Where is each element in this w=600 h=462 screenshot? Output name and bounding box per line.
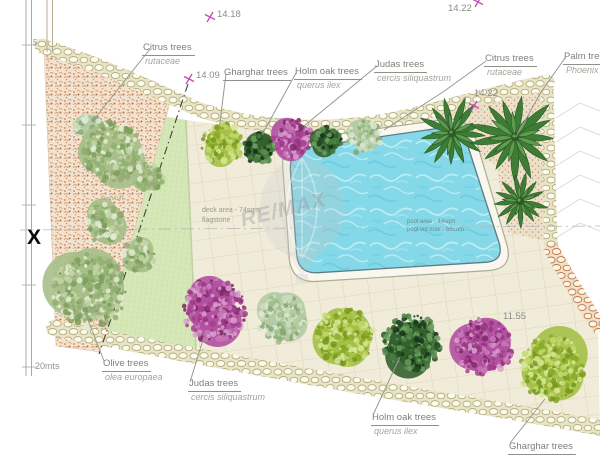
- plant-label-olive: Olive treesolea europaea: [102, 353, 163, 382]
- plant-species: olea europaea: [102, 372, 163, 382]
- plant-name: Holm oak trees: [294, 67, 362, 80]
- elevation-marker: 14.18: [217, 9, 241, 20]
- plant-label-gharghar-bottom: Gharghar trees: [508, 436, 576, 455]
- plant-name: Olive trees: [102, 359, 151, 372]
- plant-species: rutaceae: [142, 56, 195, 66]
- plant-label-citrus-top: Citrus treesrutaceae: [142, 37, 195, 66]
- plant-name: Gharghar trees: [223, 68, 291, 81]
- plant-species: rutaceae: [484, 67, 537, 77]
- plant-label-holm-oak-top: Holm oak treesquerus ilex: [294, 61, 362, 90]
- elevation-value: 11.55: [503, 311, 526, 322]
- ruler-label-5: 5: [33, 38, 37, 47]
- deck-note-line1: deck area - 74sqm: [202, 206, 260, 216]
- plant-label-palm: Palm treesPhoenix: [563, 46, 600, 75]
- plant-species: querus ilex: [371, 426, 439, 436]
- plant-species: cercis siliquastrum: [188, 392, 265, 402]
- pool-note-line2: pool vol max - 66cum: [407, 226, 464, 234]
- plant-label-judas-bottom: Judas treescercis siliquastrum: [188, 373, 265, 402]
- survey-cross-icon: [204, 11, 216, 23]
- landscape-plan: RE/MAX deck area - 74sqm flagstone pool …: [0, 0, 600, 462]
- lawn-note: lawn/turf: [101, 196, 124, 202]
- survey-cross-icon: [183, 73, 195, 85]
- plant-species: Phoenix: [563, 65, 600, 75]
- plant-name: Holm oak trees: [371, 413, 439, 426]
- plant-species: querus ilex: [294, 80, 362, 90]
- plant-name: Citrus trees: [142, 43, 195, 56]
- deck-note: deck area - 74sqm flagstone: [202, 206, 260, 226]
- slope-hatch: [556, 103, 600, 238]
- plant-species: cercis siliquastrum: [374, 73, 451, 83]
- elevation-value: 14.22: [448, 3, 472, 14]
- plant-label-citrus-top-right: Citrus treesrutaceae: [484, 48, 537, 77]
- plant-name: Gharghar trees: [508, 442, 576, 455]
- elevation-marker: 14.22: [448, 3, 472, 14]
- pool-note: pool area - 44sqm pool vol max - 66cum: [407, 218, 464, 234]
- pool-note-line1: pool area - 44sqm: [407, 218, 464, 226]
- plant-label-gharghar-top: Gharghar trees: [223, 62, 291, 81]
- section-marker-x: X: [27, 226, 41, 250]
- plant-label-judas-top: Judas treescercis siliquastrum: [374, 54, 451, 83]
- elevation-value: 14.09: [196, 70, 220, 81]
- elevation-marker: 11.55: [503, 311, 526, 322]
- plant-label-holm-oak-bottom: Holm oak treesquerus ilex: [371, 407, 439, 436]
- survey-cross-icon: [472, 0, 484, 8]
- plant-name: Judas trees: [374, 60, 427, 73]
- elevation-marker: 14.22: [474, 88, 498, 99]
- elevation-marker: 14.09: [196, 70, 220, 81]
- plant-name: Judas trees: [188, 379, 241, 392]
- plant-name: Citrus trees: [484, 54, 537, 67]
- deck-note-line2: flagstone: [202, 216, 260, 226]
- survey-cross-icon: [468, 100, 480, 112]
- plant-name: Palm trees: [563, 52, 600, 65]
- elevation-value: 14.18: [217, 9, 241, 20]
- ruler-label-20mts: 20mts: [35, 361, 60, 371]
- elevation-value: 14.22: [474, 88, 498, 99]
